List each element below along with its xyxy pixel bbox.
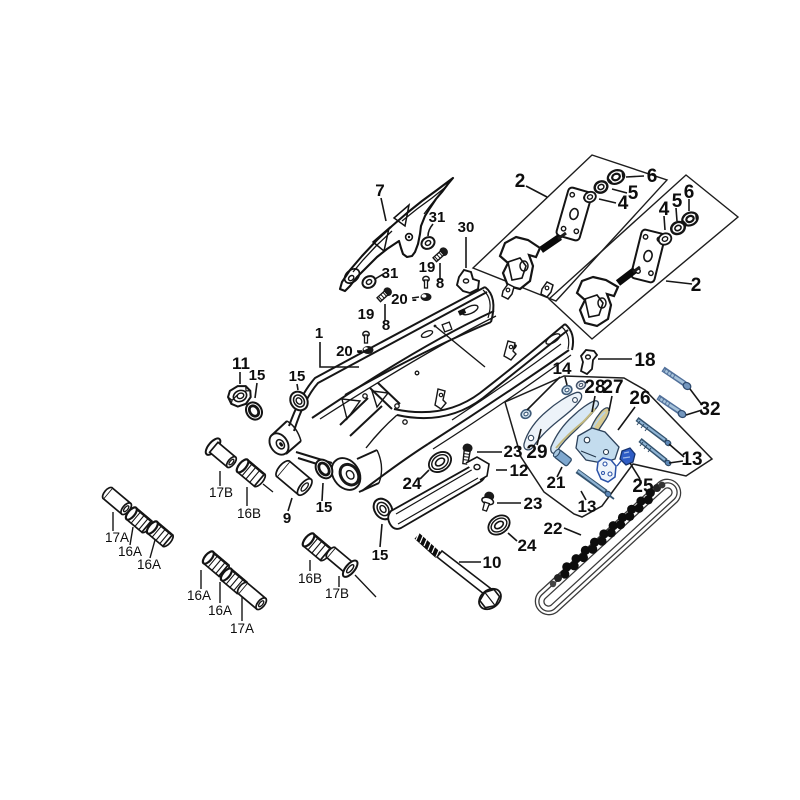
svg-text:12: 12 [510, 461, 529, 480]
svg-text:6: 6 [684, 182, 695, 203]
svg-text:31: 31 [429, 209, 446, 226]
svg-text:21: 21 [547, 473, 566, 492]
svg-text:16A: 16A [137, 557, 161, 572]
svg-text:17B: 17B [325, 586, 349, 601]
svg-text:27: 27 [602, 377, 623, 398]
svg-text:17B: 17B [209, 485, 233, 500]
svg-text:20 -: 20 - [336, 343, 362, 360]
svg-text:17A: 17A [230, 621, 254, 636]
svg-text:13: 13 [578, 497, 597, 516]
svg-text:4: 4 [659, 199, 670, 220]
svg-text:22: 22 [544, 519, 563, 538]
svg-text:16A: 16A [208, 603, 232, 618]
svg-text:31: 31 [382, 265, 399, 282]
svg-text:8: 8 [436, 275, 444, 292]
svg-text:5: 5 [628, 183, 639, 204]
svg-text:16B: 16B [298, 571, 322, 586]
svg-text:2: 2 [691, 275, 702, 296]
svg-text:4: 4 [618, 193, 629, 214]
svg-text:17A: 17A [105, 530, 129, 545]
svg-text:15: 15 [249, 367, 266, 384]
svg-text:25: 25 [632, 476, 654, 497]
svg-text:23: 23 [524, 494, 543, 513]
svg-text:30: 30 [458, 219, 475, 236]
svg-text:29: 29 [526, 442, 547, 463]
svg-text:1: 1 [315, 325, 323, 342]
svg-text:16A: 16A [187, 588, 211, 603]
svg-text:15: 15 [316, 499, 333, 516]
svg-text:19: 19 [419, 259, 436, 276]
svg-text:23: 23 [504, 442, 523, 461]
svg-text:20 -: 20 - [391, 291, 417, 308]
svg-text:10: 10 [483, 553, 502, 572]
svg-text:19: 19 [358, 306, 375, 323]
svg-text:11: 11 [232, 354, 250, 373]
svg-text:9: 9 [283, 510, 291, 527]
svg-text:6: 6 [647, 166, 658, 187]
svg-text:18: 18 [634, 350, 655, 371]
svg-text:8: 8 [382, 317, 390, 334]
svg-text:26: 26 [629, 388, 650, 409]
svg-text:2: 2 [515, 171, 526, 192]
svg-text:24: 24 [518, 536, 537, 555]
svg-text:16B: 16B [237, 506, 261, 521]
svg-text:32: 32 [699, 399, 720, 420]
svg-text:5: 5 [672, 191, 683, 212]
svg-text:15: 15 [372, 547, 389, 564]
svg-text:13: 13 [681, 449, 702, 470]
svg-text:14: 14 [553, 359, 572, 378]
svg-text:15: 15 [289, 368, 306, 385]
svg-text:24: 24 [403, 474, 422, 493]
svg-text:7: 7 [375, 181, 384, 200]
